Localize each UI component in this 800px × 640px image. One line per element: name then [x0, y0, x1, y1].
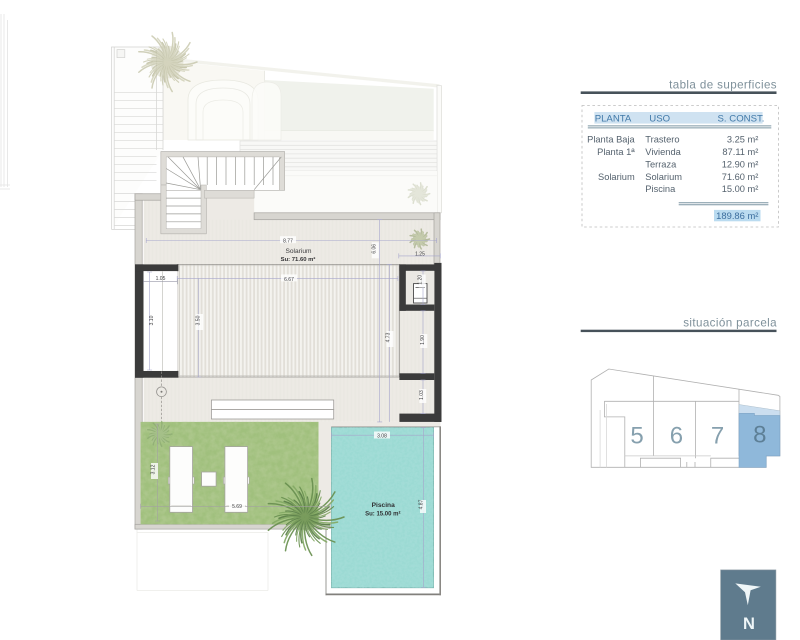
svg-text:15.00 m²: 15.00 m²	[722, 184, 759, 194]
svg-text:3.08: 3.08	[377, 433, 387, 439]
svg-text:Planta Baja: Planta Baja	[587, 135, 635, 145]
svg-text:87.11 m²: 87.11 m²	[722, 147, 758, 157]
svg-text:5: 5	[630, 423, 643, 450]
svg-text:Piscina: Piscina	[645, 184, 676, 194]
svg-text:1.20: 1.20	[418, 275, 424, 285]
svg-text:7: 7	[711, 423, 724, 450]
svg-text:189.86 m²: 189.86 m²	[716, 210, 758, 221]
svg-text:tabla de superficies: tabla de superficies	[669, 79, 777, 92]
svg-text:Planta 1ª: Planta 1ª	[597, 147, 635, 157]
svg-text:6.06: 6.06	[372, 244, 378, 254]
svg-text:1.05: 1.05	[156, 276, 166, 282]
svg-text:Terraza: Terraza	[645, 159, 677, 169]
svg-text:8.77: 8.77	[283, 239, 293, 245]
svg-text:6.67: 6.67	[284, 277, 294, 283]
svg-text:Piscina: Piscina	[372, 502, 395, 509]
svg-text:Solarium: Solarium	[598, 172, 635, 182]
svg-text:6: 6	[670, 423, 683, 450]
svg-text:Vivienda: Vivienda	[645, 147, 681, 157]
svg-text:3.12: 3.12	[151, 464, 157, 474]
svg-text:4.73: 4.73	[385, 332, 391, 342]
svg-text:Su: 15.00 m²: Su: 15.00 m²	[365, 511, 400, 518]
svg-text:3.10: 3.10	[149, 315, 155, 325]
svg-text:Solarium: Solarium	[645, 172, 682, 182]
svg-text:Su: 71.60 m²: Su: 71.60 m²	[281, 256, 316, 263]
svg-text:N: N	[743, 615, 755, 633]
svg-text:Trastero: Trastero	[645, 135, 679, 145]
svg-text:1.03: 1.03	[419, 390, 425, 400]
svg-text:Solarium: Solarium	[285, 248, 312, 255]
svg-text:situación parcela: situación parcela	[683, 316, 777, 329]
svg-text:3.50: 3.50	[196, 315, 202, 325]
svg-text:4.87: 4.87	[419, 499, 425, 509]
svg-text:5.69: 5.69	[232, 504, 242, 510]
svg-text:3.25 m²: 3.25 m²	[727, 135, 759, 145]
svg-text:8: 8	[753, 422, 766, 449]
svg-text:S. CONST.: S. CONST.	[718, 114, 765, 125]
svg-text:12.90 m²: 12.90 m²	[722, 159, 759, 169]
svg-text:USO: USO	[649, 114, 670, 125]
svg-text:PLANTA: PLANTA	[595, 114, 632, 125]
svg-text:71.60 m²: 71.60 m²	[722, 172, 759, 182]
svg-text:1.90: 1.90	[420, 335, 426, 345]
svg-text:1.25: 1.25	[415, 251, 425, 257]
